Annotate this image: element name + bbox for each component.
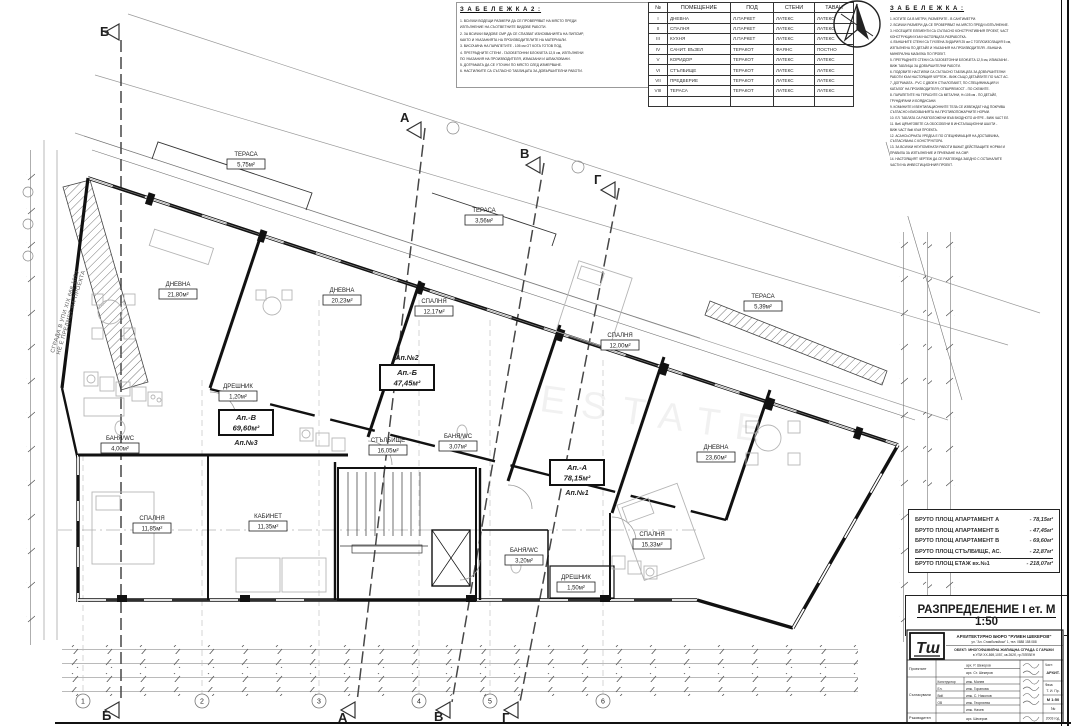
summary-row-total: БРУТО ПЛОЩ ЕТАЖ вх.№1- 218,07м²: [915, 559, 1053, 570]
room-label: БАНЯ/WC3,20м²: [505, 548, 543, 565]
svg-text:СТЪЛБИЩЕ: СТЪЛБИЩЕ: [371, 438, 405, 444]
finish-header-row: № ПОМЕЩЕНИЕ ПОД СТЕНИ ТАВАН: [649, 3, 854, 13]
svg-text:Ап.-А: Ап.-А: [566, 463, 587, 472]
svg-text:БАНЯ/WC: БАНЯ/WC: [106, 436, 135, 442]
svg-text:21,80м²: 21,80м²: [167, 293, 188, 299]
svg-text:ДРЕШНИК: ДРЕШНИК: [223, 384, 253, 390]
svg-text:БАНЯ/WC: БАНЯ/WC: [444, 434, 473, 440]
svg-text:3,56м²: 3,56м²: [475, 219, 493, 225]
svg-text:арх. Шекеров: арх. Шекеров: [966, 717, 987, 721]
axis-marker-top: В: [520, 146, 540, 173]
notes-right-title: З А Б Е Л Е Ж К А :: [890, 4, 1062, 15]
svg-text:23,60м²: 23,60м²: [705, 456, 726, 462]
room-label: ДНЕВНА23,60м²: [697, 445, 735, 462]
table-row: VIСТЪЛБИЩЕТЕРАКОТЛАТЕКСЛАТЕКС: [649, 65, 854, 75]
svg-text:1,20м²: 1,20м²: [229, 395, 247, 401]
svg-text:СПАЛНЯ: СПАЛНЯ: [639, 532, 664, 538]
watermark: ESTATE: [538, 378, 780, 453]
svg-text:арх. Ст. Шекеров: арх. Ст. Шекеров: [966, 671, 993, 675]
svg-text:АРХИТ.: АРХИТ.: [1046, 671, 1059, 675]
svg-text:20,23м²: 20,23м²: [331, 299, 352, 305]
table-row: VIIПРЕДВЕРИЕТЕРАКОТЛАТЕКСЛАТЕКС: [649, 75, 854, 85]
svg-text:ТЕРАСА: ТЕРАСА: [472, 208, 495, 214]
axis-marker-top: Г: [594, 172, 615, 198]
role-leader: Ръководител: [909, 716, 931, 720]
svg-text:69,60м²: 69,60м²: [233, 424, 260, 433]
room-label: ДРЕШНИК1,50м²: [557, 575, 595, 592]
axis-marker-top: Б: [100, 24, 119, 40]
svg-text:Ап.№3: Ап.№3: [233, 440, 257, 447]
svg-text:ТЕРАСА: ТЕРАСА: [234, 152, 257, 158]
svg-text:Ел.: Ел.: [938, 687, 943, 691]
notes-right-body: 1. КОТИТЕ СА В МЕТРИ, РАЗМЕРИТЕ - В САНТ…: [890, 17, 1062, 169]
svg-text:ТЕРАСА: ТЕРАСА: [751, 294, 774, 300]
axis-marker-bottom: Б: [102, 702, 119, 723]
svg-text:5,75м²: 5,75м²: [237, 163, 255, 169]
notes-left: З А Б Е Л Е Ж К А 2 : 1. ВСИЧКИ ВОДЕЩИ Р…: [456, 2, 650, 88]
svg-text:6: 6: [601, 699, 605, 706]
table-row: VКОРИДОРТЕРАКОТЛАТЕКСЛАТЕКС: [649, 54, 854, 64]
axis-marker-bottom: В: [434, 702, 450, 724]
room-label: ТЕРАСА3,56м²: [465, 208, 503, 225]
svg-text:5,39м²: 5,39м²: [754, 305, 772, 311]
svg-text:Т. И. Пр.: Т. И. Пр.: [1046, 689, 1059, 693]
table-row: [649, 96, 854, 106]
summary-row: БРУТО ПЛОЩ АПАРТАМЕНТ Б- 47,45м²: [915, 526, 1053, 537]
svg-text:Г: Г: [594, 172, 602, 187]
svg-text:Ап.№1: Ап.№1: [564, 490, 588, 497]
svg-text:3: 3: [317, 699, 321, 706]
apartment-label: Ап.-В 69,60м² Ап.№3: [219, 410, 273, 447]
svg-text:3,20м²: 3,20м²: [515, 559, 533, 565]
room-label: СПАЛНЯ11,85м²: [133, 516, 171, 533]
table-row: IДНЕВНАЛ.ПАРКЕТЛАТЕКСЛАТЕКС: [649, 13, 854, 23]
object-line1: ОБЕКТ: МНОГОФАМИЛНА ЖИЛИЩНА СГРАДА С ГАР…: [954, 648, 1054, 652]
svg-text:47,45м²: 47,45м²: [393, 379, 421, 388]
table-row: IIСПАЛНЯЛ.ПАРКЕТЛАТЕКСЛАТЕКС: [649, 23, 854, 33]
svg-text:арх. Р. Шекеров: арх. Р. Шекеров: [966, 664, 991, 668]
svg-text:ДРЕШНИК: ДРЕШНИК: [561, 575, 591, 581]
notes-left-body: 1. ВСИЧКИ ВОДЕЩИ РАЗМЕРИ ДА СЕ ПРОВЕРЯВА…: [460, 18, 646, 75]
table-row: VIIIТЕРАСАТЕРАКОТЛАТЕКСЛАТЕКС: [649, 86, 854, 96]
page-title: РАЗПРЕДЕЛЕНИЕ I ет. М 1:50: [917, 604, 1055, 630]
svg-text:ДНЕВНА: ДНЕВНА: [330, 288, 355, 294]
svg-text:16,05м²: 16,05м²: [377, 449, 398, 455]
apartment-label: Ап.-А 78,15м² Ап.№1: [550, 460, 604, 497]
room-label: ТЕРАСА5,75м²: [227, 152, 265, 169]
drawing-sheet: ESTATE ДНЕВНА21,80м² СПАЛНЯ11,85м² КАБИН…: [0, 0, 1071, 726]
room-label: СПАЛНЯ12,17м²: [415, 299, 453, 316]
axis-markers: Б А В Г Б А В Г: [100, 24, 615, 725]
svg-text:СПАЛНЯ: СПАЛНЯ: [607, 333, 632, 339]
svg-text:инж. Монев: инж. Монев: [966, 680, 984, 684]
svg-text:Ап.-В: Ап.-В: [235, 413, 257, 422]
svg-text:Тш: Тш: [916, 640, 940, 657]
svg-text:Ап.-Б: Ап.-Б: [396, 368, 418, 377]
svg-text:СПАЛНЯ: СПАЛНЯ: [139, 516, 164, 522]
svg-text:ВиК: ВиК: [938, 694, 944, 698]
svg-text:М 1:50: М 1:50: [1047, 697, 1060, 702]
svg-text:Част:: Част:: [1045, 663, 1053, 667]
table-row: IIIКУХНЯЛ.ПАРКЕТЛАТЕКСЛАТЕКС: [649, 34, 854, 44]
svg-text:4,00м²: 4,00м²: [111, 447, 129, 453]
room-label: ТЕРАСА5,39м²: [744, 294, 782, 311]
svg-text:12,17м²: 12,17м²: [423, 310, 444, 316]
svg-text:5: 5: [488, 699, 492, 706]
svg-text:12,00м²: 12,00м²: [609, 344, 630, 350]
svg-text:1,50м²: 1,50м²: [567, 586, 585, 592]
room-label: ДРЕШНИК1,20м²: [219, 384, 257, 401]
svg-text:В: В: [520, 146, 529, 161]
summary-row: БРУТО ПЛОЩ СТЪЛБИЩЕ, АС.- 22,87м²: [915, 547, 1053, 559]
svg-text:ДНЕВНА: ДНЕВНА: [166, 282, 191, 288]
svg-text:2: 2: [200, 699, 204, 706]
svg-text:11,35м²: 11,35м²: [258, 525, 279, 531]
room-label: СПАЛНЯ12,00м²: [601, 333, 639, 350]
notes-left-title: З А Б Е Л Е Ж К А 2 :: [460, 5, 646, 16]
svg-text:БАНЯ/WC: БАНЯ/WC: [510, 548, 539, 554]
room-label: КАБИНЕТ11,35м²: [249, 514, 287, 531]
title-block: Тш АРХИТЕКТУРНО БЮРО "РУМЕН ШЕКЕРОВ" ул.…: [906, 629, 1064, 724]
grid-bubbles: 1 2 3 4 5 6: [23, 122, 610, 708]
svg-text:15,33м²: 15,33м²: [641, 543, 662, 549]
svg-text:11,85м²: 11,85м²: [142, 527, 163, 533]
svg-text:инж. Георгиева: инж. Георгиева: [966, 701, 990, 705]
svg-text:Конструктор: Конструктор: [938, 680, 956, 684]
room-label: БАНЯ/WC4,00м²: [101, 436, 139, 453]
frame-bottom: [55, 722, 1071, 724]
svg-text:№: №: [1051, 706, 1055, 711]
apartment-label: Ап.-Б 47,45м² Ап.№2: [380, 355, 434, 390]
firm-name: АРХИТЕКТУРНО БЮРО "РУМЕН ШЕКЕРОВ": [957, 634, 1052, 639]
svg-text:Ап.№2: Ап.№2: [394, 355, 418, 362]
summary-row: БРУТО ПЛОЩ АПАРТАМЕНТ А- 78,15м²: [915, 515, 1053, 526]
finish-schedule: № ПОМЕЩЕНИЕ ПОД СТЕНИ ТАВАН IДНЕВНАЛ.ПАР…: [648, 2, 854, 107]
svg-text:СПАЛНЯ: СПАЛНЯ: [421, 299, 446, 305]
svg-text:Фаза:: Фаза:: [1045, 683, 1053, 687]
object-line2: в УПИ XX-869,1057, кв.262б, гр.ПЛЕВЕН: [973, 653, 1036, 657]
svg-text:1: 1: [81, 699, 85, 706]
north-arrow-icon: [828, 0, 886, 52]
svg-text:инж. Горанова: инж. Горанова: [966, 687, 989, 691]
frame-right-outer: [1067, 0, 1069, 726]
room-label: СТЪЛБИЩЕ16,05м²: [369, 438, 407, 455]
table-row: IVСАНИТ. ВЪЗЕЛТЕРАКОТФАЯНСПОСТНО: [649, 44, 854, 54]
svg-text:ДНЕВНА: ДНЕВНА: [704, 445, 729, 451]
summary-row: БРУТО ПЛОЩ АПАРТАМЕНТ В- 69,60м²: [915, 536, 1053, 547]
svg-text:А: А: [400, 110, 410, 125]
firm-address: ул. "Ал. Стамболийски" 1, тел. 0888 158 …: [971, 640, 1036, 644]
frame-right-inner: [1061, 0, 1062, 726]
svg-text:2003 год.: 2003 год.: [1046, 717, 1060, 721]
svg-text:ОВ: ОВ: [938, 701, 943, 705]
svg-text:КАБИНЕТ: КАБИНЕТ: [254, 514, 282, 520]
svg-text:4: 4: [417, 699, 421, 706]
svg-text:3,07м²: 3,07м²: [449, 445, 467, 451]
role-consultant: Съгласували: [909, 693, 931, 697]
room-label: БАНЯ/WC3,07м²: [439, 434, 477, 451]
room-label: ДНЕВНА21,80м²: [159, 282, 197, 299]
svg-text:инж. Начев: инж. Начев: [966, 708, 984, 712]
notes-right: З А Б Е Л Е Ж К А : 1. КОТИТЕ СА В МЕТРИ…: [890, 4, 1062, 216]
room-label: ДНЕВНА20,23м²: [323, 288, 361, 305]
svg-text:инж. С. Николов: инж. С. Николов: [966, 694, 992, 698]
role-designer: Проектант: [909, 667, 927, 671]
axis-marker-top: А: [400, 110, 421, 138]
room-label: СПАЛНЯ15,33м²: [633, 532, 671, 549]
apartment-labels: Ап.-А 78,15м² Ап.№1 Ап.-Б 47,45м² Ап.№2 …: [219, 355, 604, 497]
area-summary: БРУТО ПЛОЩ АПАРТАМЕНТ А- 78,15м² БРУТО П…: [908, 509, 1060, 573]
svg-text:Б: Б: [102, 708, 111, 723]
svg-text:78,15м²: 78,15м²: [564, 474, 591, 483]
